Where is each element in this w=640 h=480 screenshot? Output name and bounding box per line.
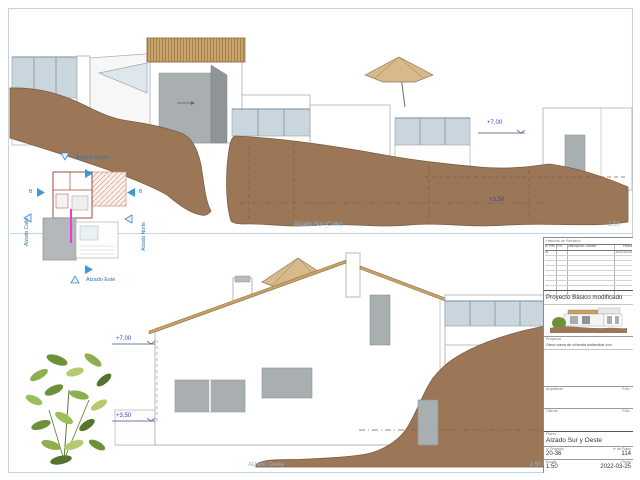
- project-label: Proyecto: [546, 337, 561, 341]
- drawing-sheet: +7,00 +3,50 Alzado Sur (Calle) 1:50: [0, 0, 640, 480]
- bottom-level-upper: +7,00: [116, 336, 131, 342]
- tree: [24, 351, 113, 466]
- bottom-view-title-line: [10, 472, 552, 473]
- keyplan-section-right: B: [139, 189, 142, 195]
- top-level-upper: +7,00: [487, 120, 502, 126]
- revision-table: Nº Rev Por Descripción Cambio Fecha 01 2…: [545, 244, 632, 296]
- rev1-date: 2022-03-25: [615, 251, 632, 255]
- rev1-by: [557, 251, 567, 255]
- revision-table-header: Nº Rev Por Descripción Cambio Fecha: [545, 244, 632, 251]
- top-view-scale: 1:50: [608, 222, 620, 228]
- project-thumbnail: [550, 307, 627, 334]
- ridge-wall: [346, 253, 360, 297]
- level-line-700: [478, 130, 525, 133]
- rev1-num: 01: [545, 251, 557, 255]
- title-block: Historial de Revisión Nº Rev Por Descrip…: [543, 237, 633, 473]
- rev-col-desc: Descripción Cambio: [568, 245, 615, 250]
- window-b: [262, 368, 312, 398]
- divider: [544, 349, 633, 350]
- client-label: Cliente: [546, 409, 558, 413]
- architect-sign-label: Fdo.:: [622, 387, 631, 391]
- client-sign-label: Fdo.:: [622, 409, 631, 413]
- plan-no-value: 114: [621, 451, 631, 457]
- divider: [544, 290, 633, 291]
- divider: [544, 431, 633, 432]
- top-view-title: Alzado Sur (Calle): [294, 222, 343, 228]
- scale-value: 1:50: [546, 464, 558, 470]
- divider: [544, 459, 633, 460]
- date-value: 2022-03-25: [600, 464, 631, 470]
- rev1-desc: [568, 251, 615, 255]
- side-door: [418, 400, 438, 445]
- window-a: [175, 380, 245, 412]
- project-title: Proyecto Básico modificado: [546, 294, 622, 301]
- parasol: [365, 57, 433, 107]
- west-elevation-drawing: [9, 240, 545, 475]
- plan-label: Plano:: [546, 432, 557, 436]
- bottom-view-title: Alzado Oeste: [248, 462, 284, 468]
- revision-history-title: Historial de Revisión: [546, 239, 581, 243]
- keyplan-rooms: [53, 172, 92, 218]
- architect-label: Arquitecto: [546, 387, 563, 391]
- rev-col-num: Nº Rev: [545, 245, 557, 250]
- plateau-balustrade: [232, 109, 310, 136]
- divider: [544, 304, 633, 305]
- plan-name: Alzado Sur y Oeste: [546, 437, 602, 444]
- project-description: Obra nueva de vivienda unifamiliar con: [546, 343, 612, 347]
- rev-col-by: Por: [557, 245, 567, 250]
- top-level-lower: +3,50: [489, 197, 504, 203]
- project-no-value: 20-36: [546, 451, 561, 457]
- keyplan-west-label: Alzado Oeste: [76, 155, 109, 161]
- rev-col-date: Fecha: [615, 245, 632, 250]
- bottom-view-scale: 1:50: [530, 462, 542, 468]
- tall-window: [370, 295, 390, 345]
- bottom-level-lower: +3,50: [116, 413, 131, 419]
- keyplan-section-left: B: [29, 189, 32, 195]
- house-facade: [155, 263, 445, 445]
